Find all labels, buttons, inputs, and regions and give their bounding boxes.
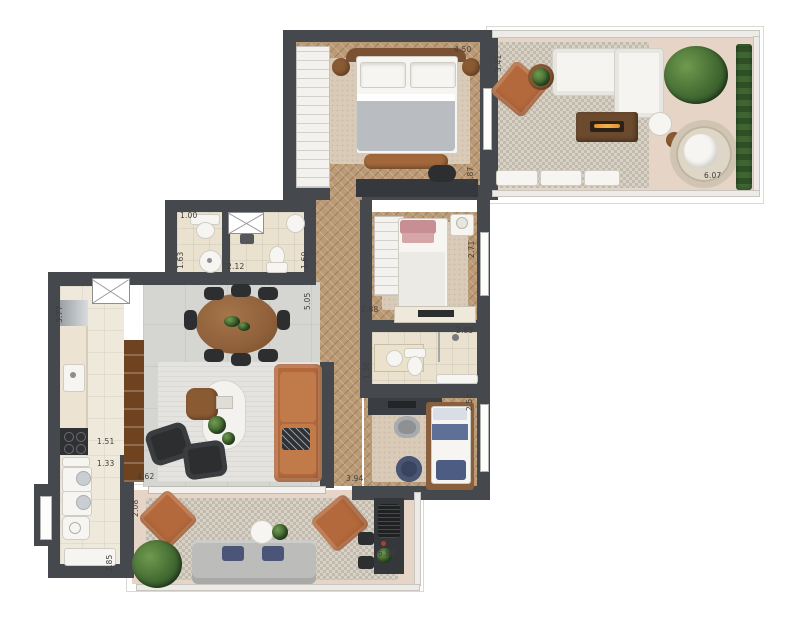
wall-master-left bbox=[283, 30, 296, 200]
stove-burner bbox=[76, 444, 86, 454]
dim-kitchen-seg1: 1.51 bbox=[97, 438, 115, 446]
bedroom3-footer-blanket bbox=[436, 460, 466, 480]
stove-burner bbox=[64, 444, 74, 454]
dryer-door bbox=[76, 495, 91, 510]
dim-service-depth: 2.85 bbox=[106, 555, 114, 573]
bedroom2-window bbox=[480, 232, 489, 296]
upper-round-table bbox=[648, 112, 672, 136]
dim-hall-length: 5.05 bbox=[304, 293, 312, 311]
coffee-table-plant bbox=[208, 416, 226, 434]
bedroom2-blanket bbox=[399, 252, 445, 310]
dim-wc-width: 1.00 bbox=[180, 212, 198, 220]
bedroom2-lamp bbox=[456, 217, 468, 229]
kitchen-sink bbox=[63, 364, 85, 392]
living-throw-pillow bbox=[282, 428, 310, 450]
dim-bedroom3-depth: 2.50 bbox=[466, 394, 474, 412]
lower-terrace-rail-right bbox=[414, 492, 421, 586]
stove-burner bbox=[64, 432, 74, 442]
nightstand-right bbox=[462, 58, 480, 76]
shower-box-social bbox=[228, 212, 264, 234]
dim-master-depth: 3.87 bbox=[467, 167, 475, 185]
wall-bath-right bbox=[304, 200, 316, 285]
upper-terrace-rail-bottom bbox=[492, 190, 760, 197]
suite-bath-bench bbox=[436, 374, 478, 384]
master-blanket bbox=[357, 98, 455, 151]
wall-service-bottom bbox=[48, 564, 134, 578]
coffee-table-book bbox=[216, 396, 233, 409]
terrace-plant-left bbox=[132, 540, 182, 588]
shower-head bbox=[452, 334, 459, 341]
wall-bath-bed3 bbox=[366, 384, 477, 398]
bedroom3-blanket-band bbox=[432, 424, 468, 440]
master-terrace-door bbox=[483, 88, 492, 150]
terrace-side-table bbox=[250, 520, 274, 544]
dining-chair bbox=[184, 310, 197, 330]
bedroom3-pouf bbox=[396, 456, 422, 482]
bedroom2-pillow bbox=[400, 220, 436, 234]
social-bath-sink bbox=[286, 214, 305, 233]
wall-living-sofa bbox=[320, 362, 334, 488]
wicker-chair-cushion bbox=[684, 134, 718, 168]
upper-terrace-bush bbox=[664, 46, 728, 104]
wall-bathstrip-bottom bbox=[106, 272, 316, 285]
terrace-table-plant bbox=[272, 524, 288, 540]
dim-terrace-lower-depth: 2.08 bbox=[132, 500, 140, 518]
dim-bath-suite-width: 2.85 bbox=[456, 327, 474, 335]
master-sheet-fold bbox=[357, 94, 455, 101]
shower-partition bbox=[438, 332, 440, 362]
dim-master-width: 4.50 bbox=[454, 46, 472, 54]
nightstand-left bbox=[332, 58, 350, 76]
living-armchair bbox=[182, 439, 229, 480]
living-terrace-sliding-door bbox=[148, 486, 326, 494]
dim-terrace-upper-width: 6.07 bbox=[704, 172, 722, 180]
bedroom3-window bbox=[480, 404, 489, 472]
coffee-table-plant2 bbox=[222, 432, 235, 445]
upper-terrace-chaise bbox=[614, 48, 664, 118]
master-chair bbox=[428, 165, 456, 182]
bedroom2-cushion bbox=[402, 233, 434, 243]
fire-pit-flame bbox=[594, 124, 620, 128]
terrace-sofa-pillow bbox=[262, 546, 284, 561]
gourmet-stool bbox=[358, 532, 374, 545]
dim-bath-social-width: 2.12 bbox=[227, 263, 245, 271]
terrace-sofa bbox=[192, 540, 316, 584]
vertical-garden bbox=[736, 44, 752, 190]
kitchen-sink-drain bbox=[70, 372, 76, 378]
dining-chair bbox=[204, 349, 224, 362]
coffee-table-wood bbox=[186, 388, 218, 420]
stove-burner bbox=[76, 432, 86, 442]
terrace-bench bbox=[496, 170, 538, 186]
dim-bath-suite-depth: 1.30 bbox=[363, 362, 371, 380]
service-shelf bbox=[62, 457, 90, 467]
upper-terrace-rail-right bbox=[753, 36, 760, 194]
service-door bbox=[40, 496, 52, 540]
dining-chair bbox=[277, 310, 290, 330]
social-bath-faucet bbox=[240, 234, 254, 244]
counter-plate-red bbox=[381, 541, 386, 546]
dim-living-width: 4.62 bbox=[137, 473, 155, 481]
dining-centerpiece2 bbox=[238, 322, 250, 331]
dining-chair bbox=[231, 284, 251, 297]
dim-kitchen-depth: 3.77 bbox=[56, 306, 64, 324]
suite-bath-basin bbox=[386, 350, 403, 367]
gourmet-stool bbox=[358, 556, 374, 569]
master-tv-console bbox=[356, 179, 478, 197]
bedroom2-tv bbox=[418, 310, 454, 317]
wc-toilet-bowl bbox=[196, 222, 215, 239]
living-shelf-unit bbox=[124, 340, 144, 482]
bbq-grill bbox=[378, 504, 400, 538]
dim-bedroom2-width: 2.88 bbox=[361, 306, 379, 314]
fridge bbox=[60, 300, 88, 326]
upper-terrace-rail-top bbox=[492, 30, 760, 38]
upper-side-table-plant bbox=[532, 68, 550, 86]
master-closet bbox=[296, 46, 330, 188]
master-pillow-right bbox=[410, 62, 456, 88]
dim-wc-depth: 1.63 bbox=[177, 252, 185, 270]
wall-master-top bbox=[283, 30, 498, 42]
dim-bedroom2-depth: 2.71 bbox=[468, 241, 476, 259]
dim-terrace-lower-width: 6.84 bbox=[378, 550, 396, 558]
terrace-bench bbox=[540, 170, 582, 186]
terrace-sofa-pillow bbox=[222, 546, 244, 561]
living-sofa-cushion bbox=[280, 372, 316, 422]
suite-toilet-bowl bbox=[407, 356, 423, 376]
terrace-bench bbox=[584, 170, 620, 186]
dim-terrace-upper-depth: 3.41 bbox=[495, 55, 503, 73]
lower-terrace-rail-bottom bbox=[136, 584, 420, 591]
dim-bath-social-depth: 1.60 bbox=[301, 252, 309, 270]
dining-chair bbox=[231, 353, 251, 366]
bedroom3-pillow bbox=[433, 408, 467, 420]
master-pillow-left bbox=[360, 62, 406, 88]
social-toilet-tank bbox=[266, 262, 288, 273]
dim-kitchen-seg2: 1.33 bbox=[97, 460, 115, 468]
dining-chair bbox=[258, 287, 278, 300]
wc-sink-drain bbox=[207, 258, 212, 263]
laundry-tub-drain bbox=[69, 522, 81, 534]
bedroom3-monitor bbox=[388, 401, 416, 408]
dim-bedroom3-width: 3.94 bbox=[346, 475, 364, 483]
bedroom3-chair bbox=[394, 416, 420, 438]
duct-shaft bbox=[92, 278, 130, 304]
dining-chair bbox=[204, 287, 224, 300]
dining-chair bbox=[258, 349, 278, 362]
floor-plan: 4.50 3.87 3.41 6.07 1.00 1.63 2.12 1.60 … bbox=[0, 0, 800, 632]
washer-door bbox=[76, 471, 91, 486]
